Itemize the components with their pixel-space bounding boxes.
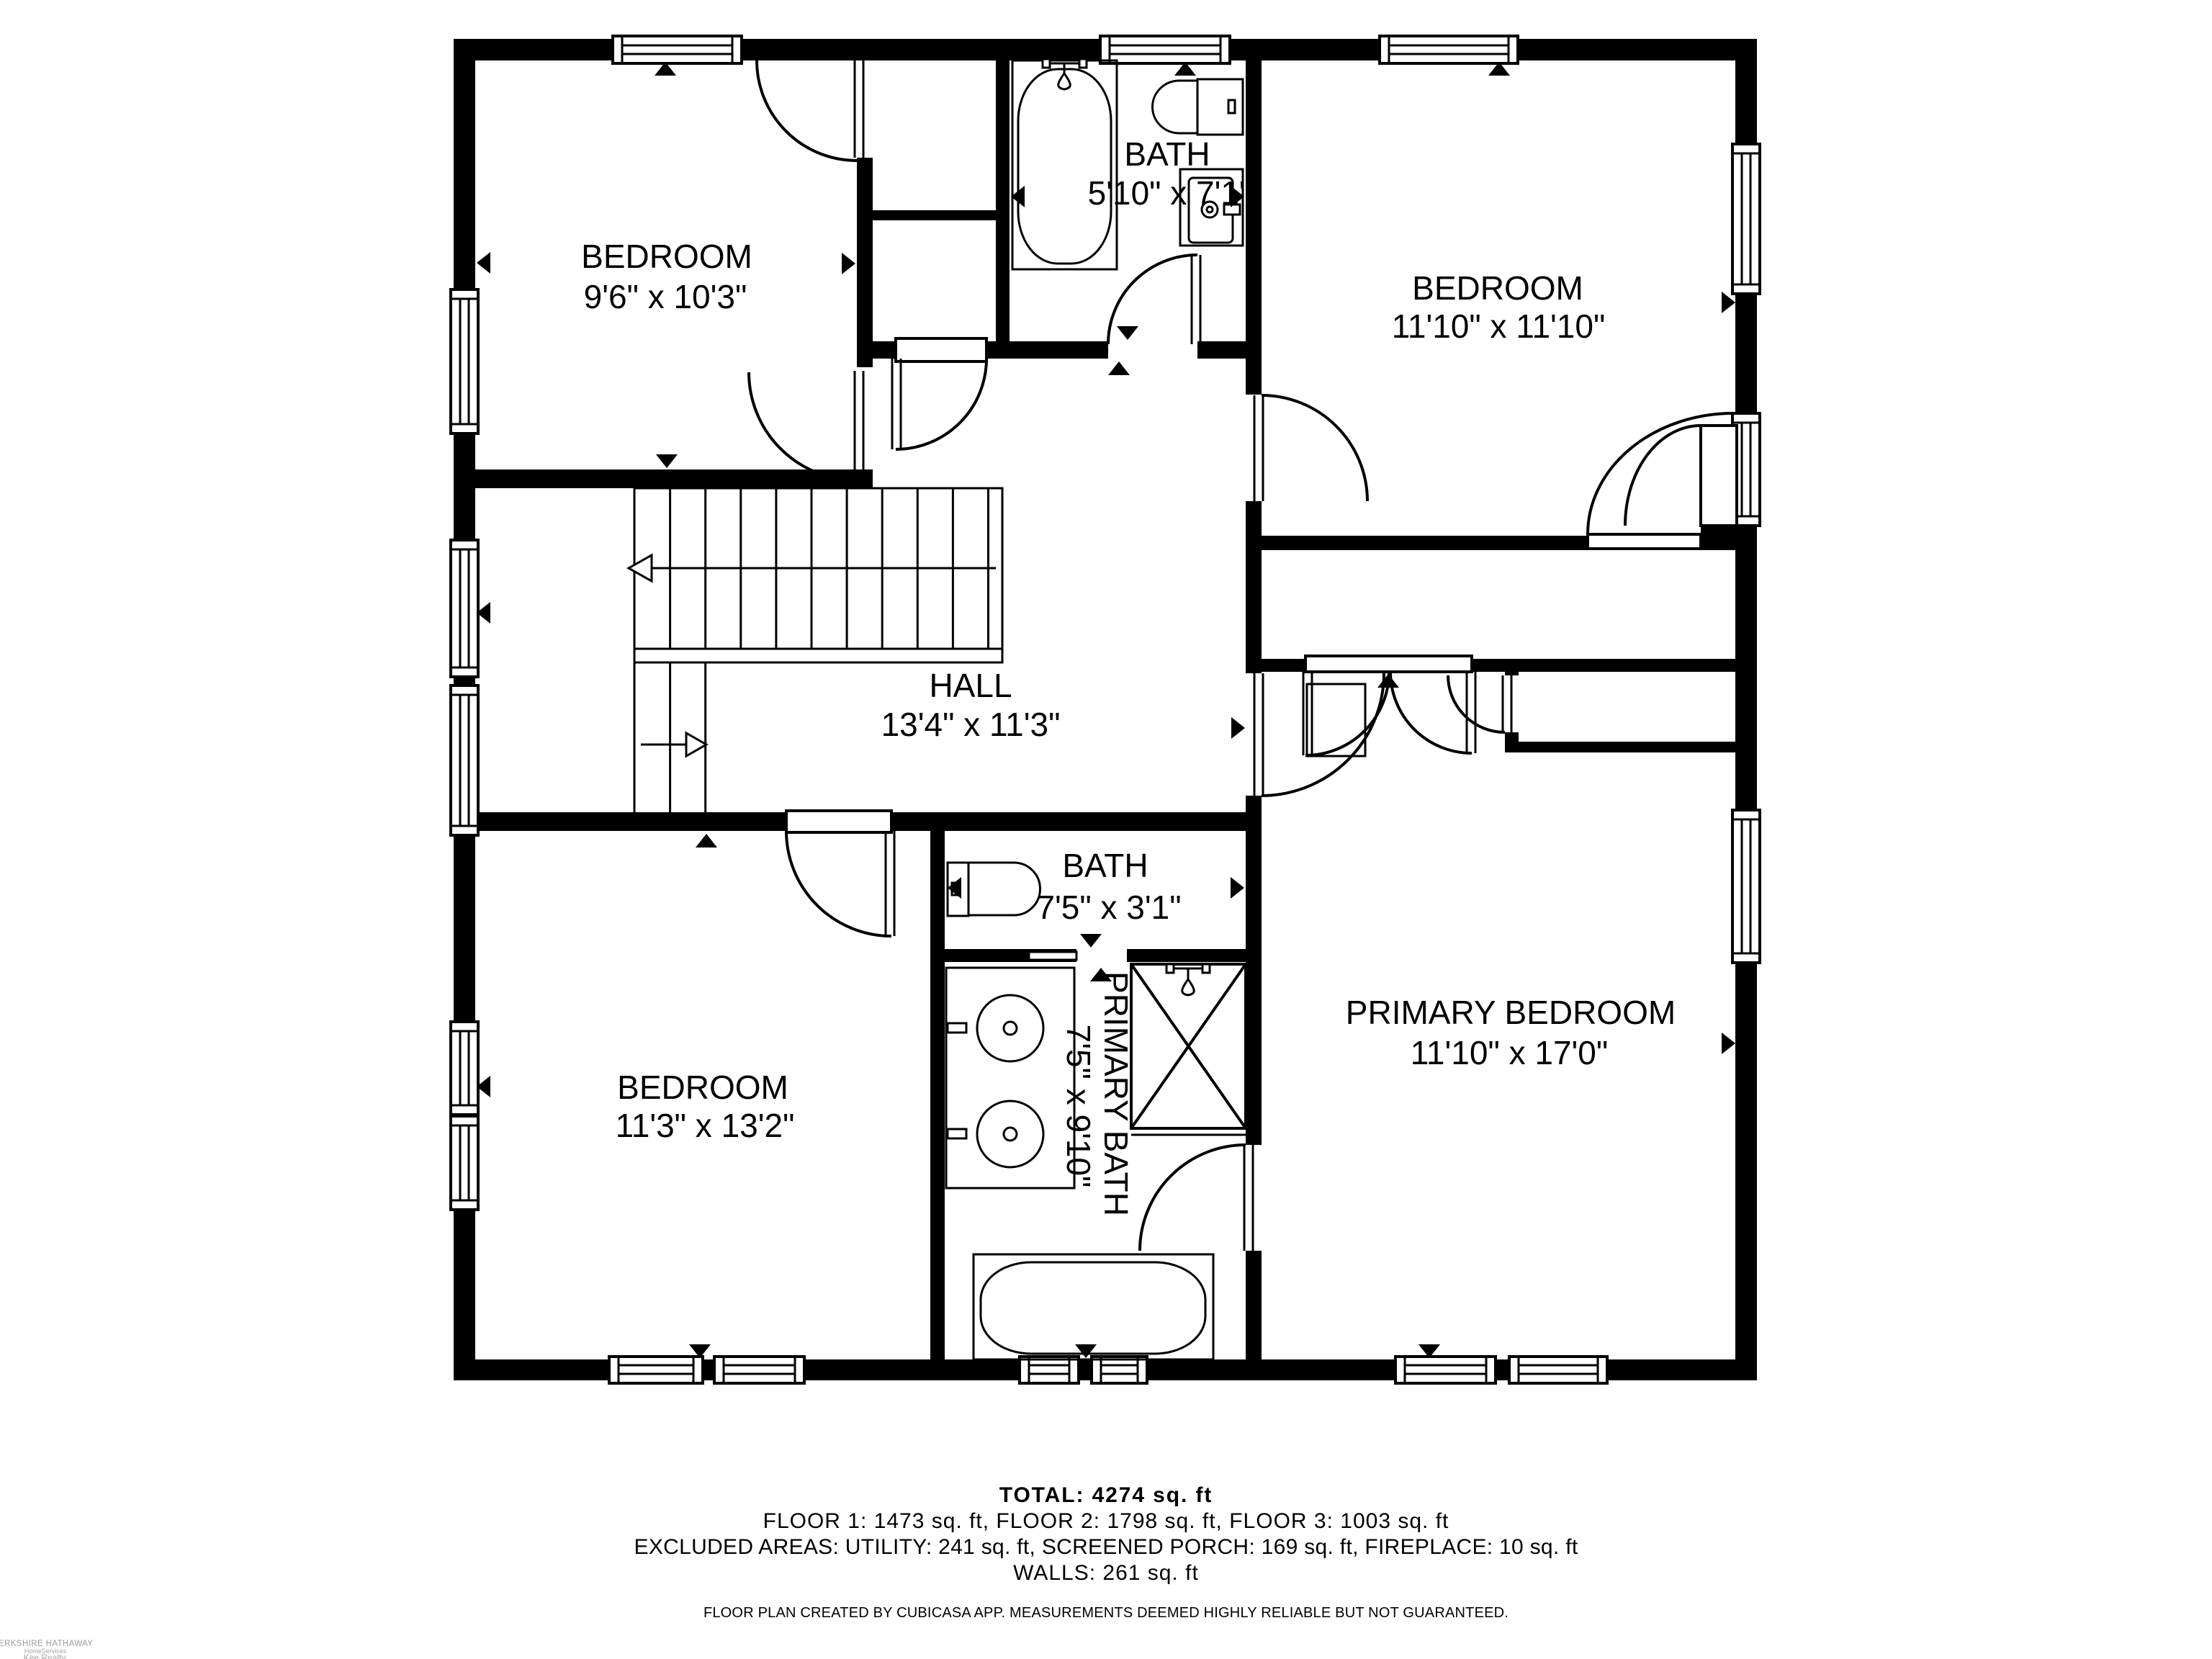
svg-text:EXCLUDED AREAS: UTILITY: 241 s: EXCLUDED AREAS: UTILITY: 241 sq. ft, SCR…	[634, 1535, 1578, 1559]
svg-text:11'3" x 13'2": 11'3" x 13'2"	[616, 1107, 795, 1144]
svg-text:5'10" x 7'1": 5'10" x 7'1"	[1088, 174, 1251, 212]
svg-text:Kee Realty: Kee Realty	[24, 1653, 66, 1659]
svg-text:FLOOR PLAN CREATED BY CUBICASA: FLOOR PLAN CREATED BY CUBICASA APP. MEAS…	[703, 1605, 1509, 1621]
svg-text:BEDROOM: BEDROOM	[617, 1069, 788, 1106]
svg-text:13'4" x 11'3": 13'4" x 11'3"	[881, 706, 1061, 743]
svg-text:7'5" x 9'10": 7'5" x 9'10"	[1060, 1025, 1097, 1188]
svg-text:11'10" x 17'0": 11'10" x 17'0"	[1411, 1034, 1608, 1071]
svg-text:BEDROOM: BEDROOM	[1412, 269, 1583, 307]
svg-text:FLOOR 1: 1473 sq. ft, FLOOR 2:: FLOOR 1: 1473 sq. ft, FLOOR 2: 1798 sq. …	[763, 1509, 1449, 1533]
svg-text:BATH: BATH	[1062, 847, 1148, 884]
svg-text:11'10" x 11'10": 11'10" x 11'10"	[1392, 307, 1606, 345]
svg-text:PRIMARY BEDROOM: PRIMARY BEDROOM	[1346, 994, 1676, 1031]
svg-text:7'5" x 3'1": 7'5" x 3'1"	[1036, 889, 1181, 926]
svg-text:TOTAL: 4274 sq. ft: TOTAL: 4274 sq. ft	[999, 1483, 1213, 1507]
svg-text:BEDROOM: BEDROOM	[581, 238, 752, 275]
svg-text:PRIMARY BATH: PRIMARY BATH	[1097, 971, 1135, 1216]
svg-text:WALLS: 261 sq. ft: WALLS: 261 sq. ft	[1013, 1561, 1199, 1585]
svg-text:9'6" x 10'3": 9'6" x 10'3"	[584, 278, 747, 315]
svg-text:BATH: BATH	[1124, 135, 1210, 173]
svg-text:HALL: HALL	[929, 667, 1012, 704]
